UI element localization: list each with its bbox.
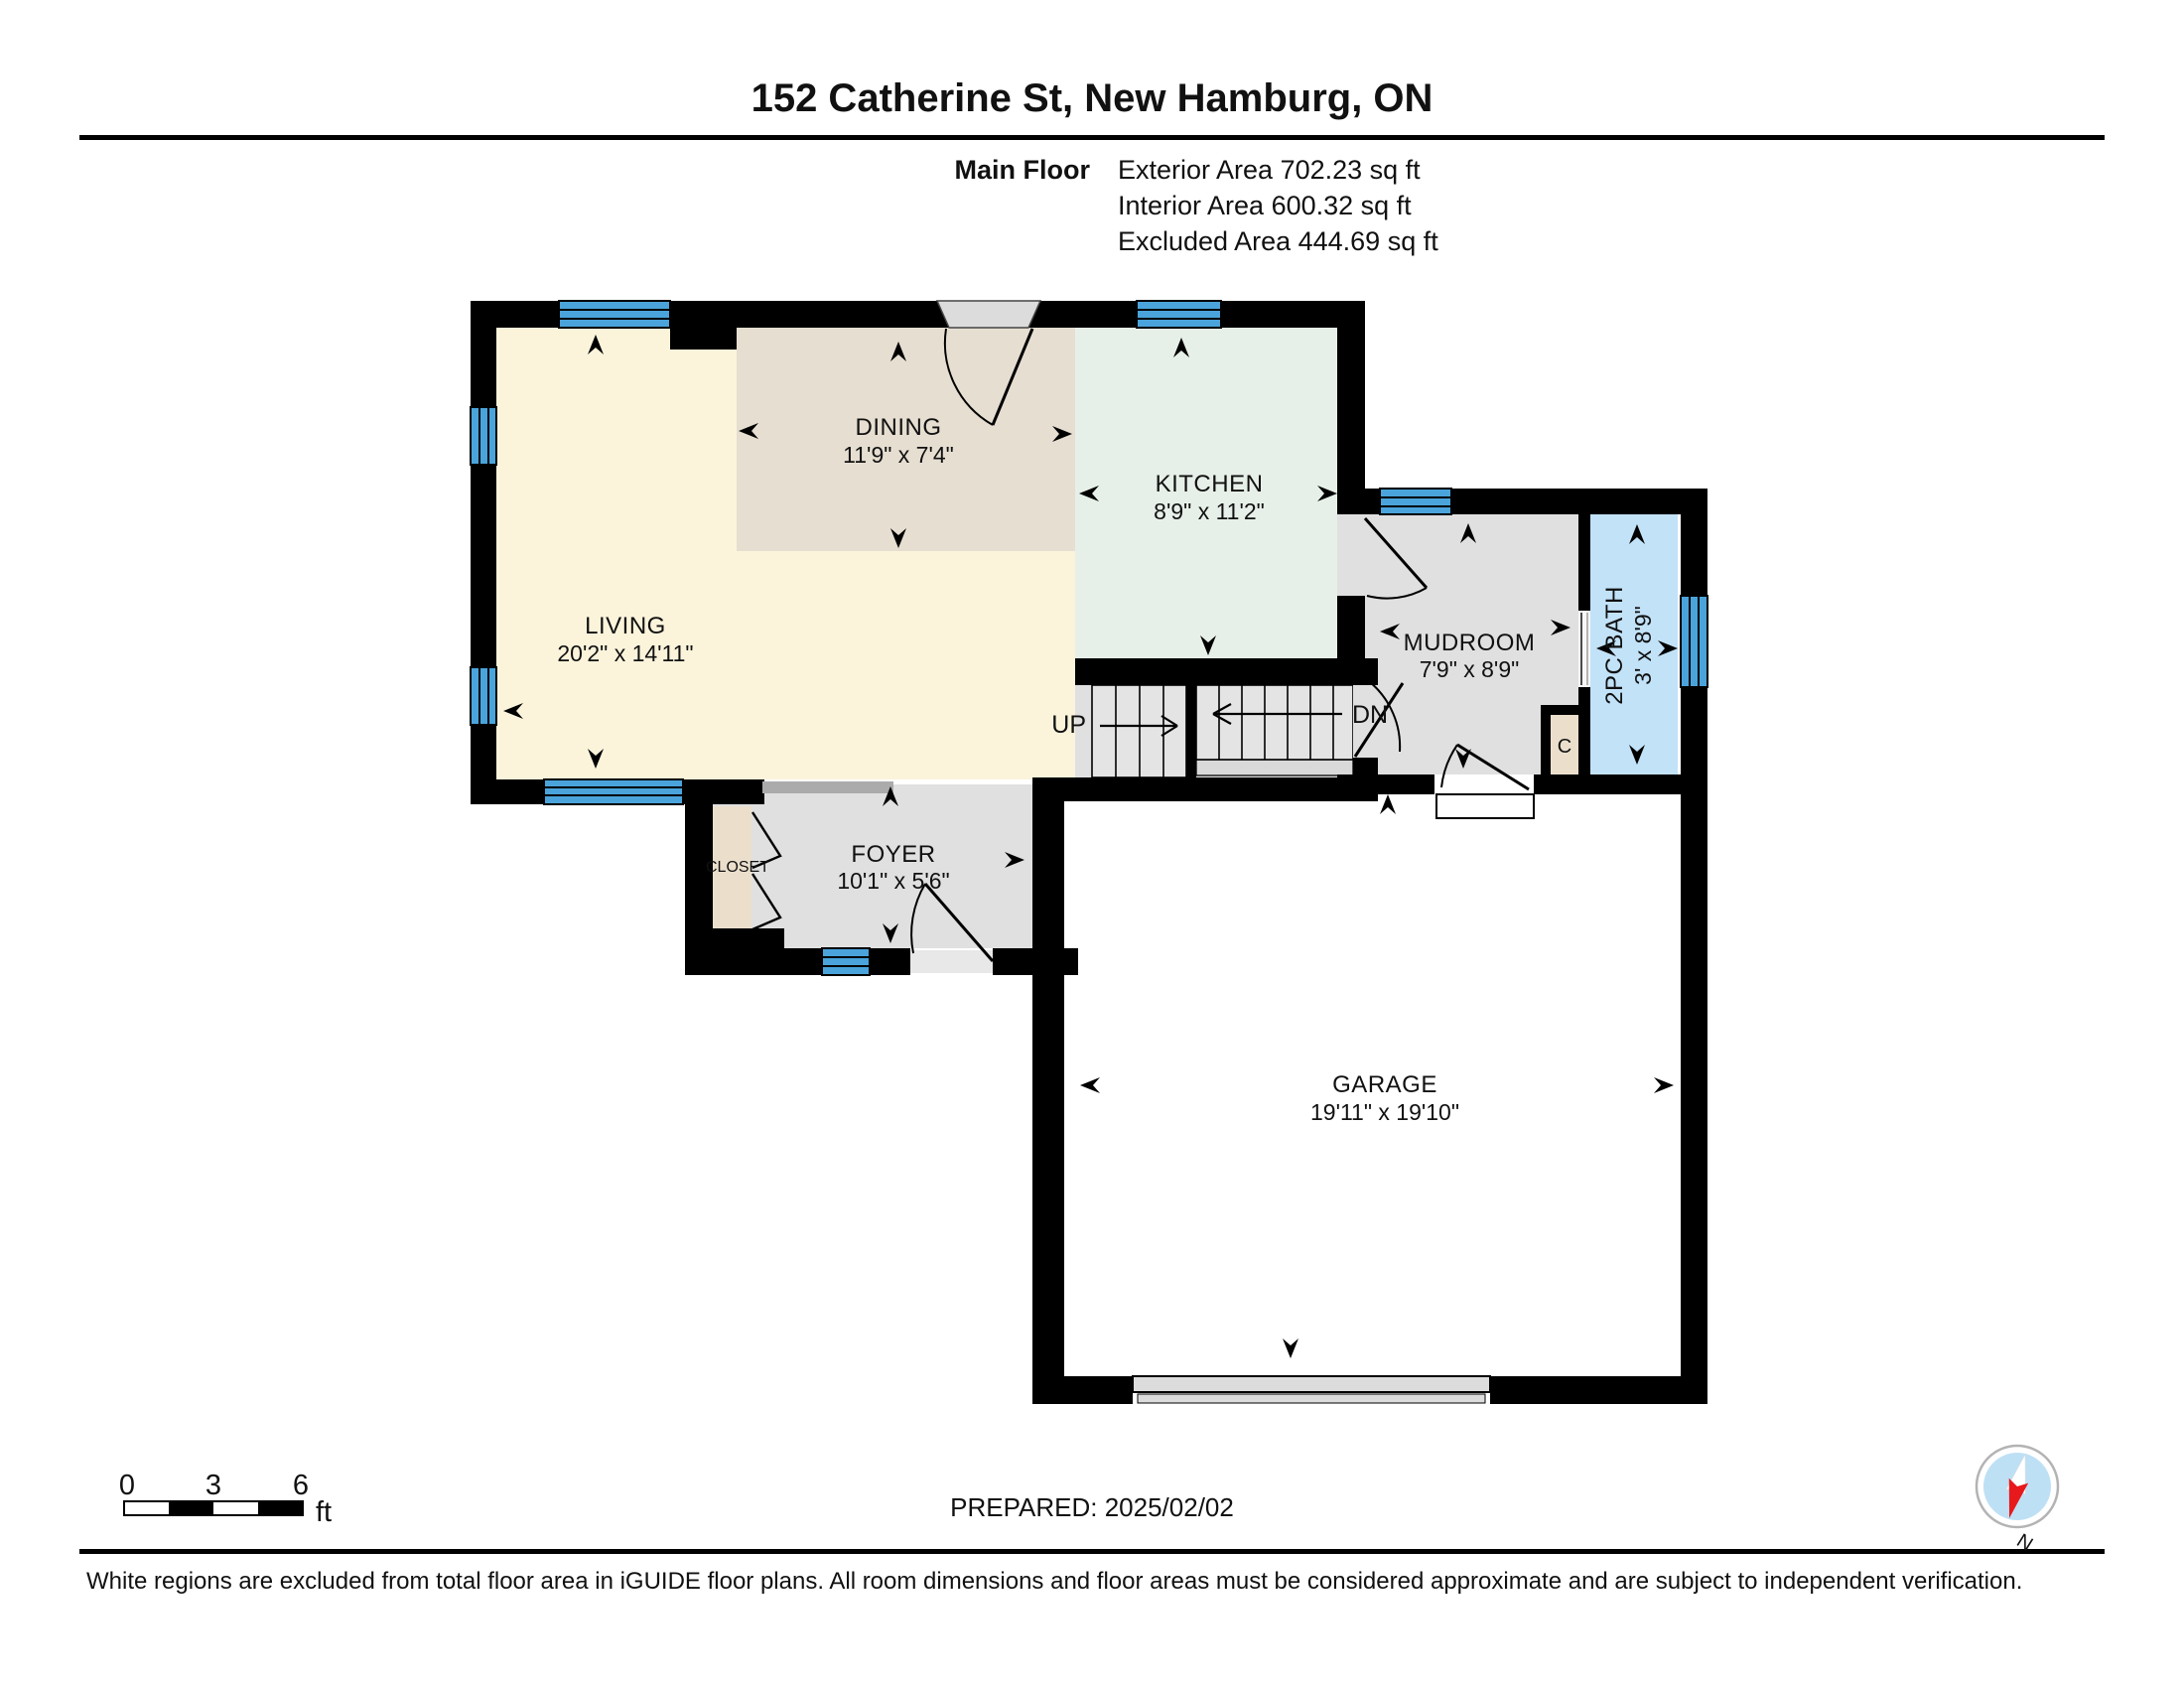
mudroom-label: MUDROOM <box>1404 630 1536 656</box>
wall-foyer-bottom-left <box>685 948 910 975</box>
living-dims: 20'2" x 14'11" <box>557 640 693 666</box>
window-living-top <box>559 301 670 328</box>
window-foyer-bottom <box>822 948 870 975</box>
wall-kitchen-right-upper <box>1337 301 1365 514</box>
bath-door <box>1578 611 1590 687</box>
prepared-date: PREPARED: 2025/02/02 <box>950 1492 1234 1522</box>
wall-stairs-bottom <box>1032 777 1378 801</box>
wall-left <box>471 301 496 804</box>
excluded-area: Excluded Area 444.69 sq ft <box>1118 226 1438 256</box>
floor-plan-page: { "header": { "title": "152 Catherine St… <box>0 0 2184 1688</box>
bath-dims: 3' x 8'9" <box>1630 606 1656 685</box>
scale-bar-segment <box>258 1501 303 1515</box>
footer-divider <box>79 1549 2105 1554</box>
stairs-down-label: DN <box>1352 701 1388 729</box>
kitchen-label: KITCHEN <box>1156 471 1264 497</box>
room-floors <box>496 326 1681 1376</box>
wall-garage-left <box>1032 777 1064 1404</box>
window-living-left-upper <box>471 407 496 465</box>
wall-small-closet-top <box>1541 705 1578 715</box>
header-divider <box>79 135 2105 140</box>
wall-stub-dining <box>670 326 737 350</box>
floor-plan-canvas: 152 Catherine St, New Hamburg, ON Main F… <box>0 0 2184 1688</box>
wall-mudroom-bottom-right <box>1534 774 1707 794</box>
kitchen-dims: 8'9" x 11'2" <box>1154 498 1265 524</box>
garage-label: GARAGE <box>1332 1071 1437 1098</box>
wall-bath-left-upper <box>1578 514 1590 611</box>
window-living-left-lower <box>471 667 496 725</box>
window-bath-right <box>1681 596 1707 687</box>
scale-unit: ft <box>316 1496 332 1528</box>
living-label: LIVING <box>585 613 666 639</box>
garage-door <box>1133 1376 1490 1404</box>
compass-icon: N <box>1977 1446 2058 1556</box>
wall-small-closet-left <box>1541 715 1551 776</box>
scale-tick-3: 3 <box>205 1470 221 1501</box>
wall-under-closet <box>713 928 784 948</box>
wall-bath-left-lower <box>1578 687 1590 774</box>
dining-dims: 11'9" x 7'4" <box>843 442 954 468</box>
dining-label: DINING <box>856 414 942 441</box>
foyer-label: FOYER <box>851 841 935 868</box>
window-living-bottom <box>544 779 683 804</box>
scale-bar: 0 3 6 ft <box>119 1470 332 1528</box>
scale-tick-0: 0 <box>119 1470 135 1501</box>
floor-label: Main Floor <box>955 155 1091 185</box>
exterior-area: Exterior Area 702.23 sq ft <box>1118 155 1421 185</box>
garage-dims: 19'11" x 19'10" <box>1310 1099 1459 1125</box>
foyer-dims: 10'1" x 5'6" <box>837 868 949 894</box>
window-mudroom-top <box>1380 489 1451 514</box>
footer: PREPARED: 2025/02/02 White regions are e… <box>79 1492 2105 1595</box>
interior-area: Interior Area 600.32 sq ft <box>1118 191 1412 220</box>
stair-landing <box>1196 760 1353 775</box>
wall-kitchen-right-lower <box>1337 596 1365 658</box>
scale-bar-segment <box>169 1501 213 1515</box>
disclaimer-text: White regions are excluded from total fl… <box>86 1568 2022 1595</box>
foyer-header-bar <box>762 781 893 793</box>
wall-stairs-top <box>1075 658 1378 685</box>
staircase <box>1092 685 1353 777</box>
stairs-up-label: UP <box>1051 711 1086 739</box>
window-kitchen-top <box>1137 301 1221 328</box>
mudroom-dims: 7'9" x 8'9" <box>1420 656 1520 682</box>
small-closet-label: C <box>1558 736 1571 758</box>
header: 152 Catherine St, New Hamburg, ON Main F… <box>79 76 2105 256</box>
scale-tick-6: 6 <box>293 1470 309 1501</box>
wall-stair-divider <box>1186 685 1196 777</box>
page-title: 152 Catherine St, New Hamburg, ON <box>751 76 1433 120</box>
bath-label: 2PC BATH <box>1601 586 1628 705</box>
closet-label: CLOSET <box>706 859 769 876</box>
